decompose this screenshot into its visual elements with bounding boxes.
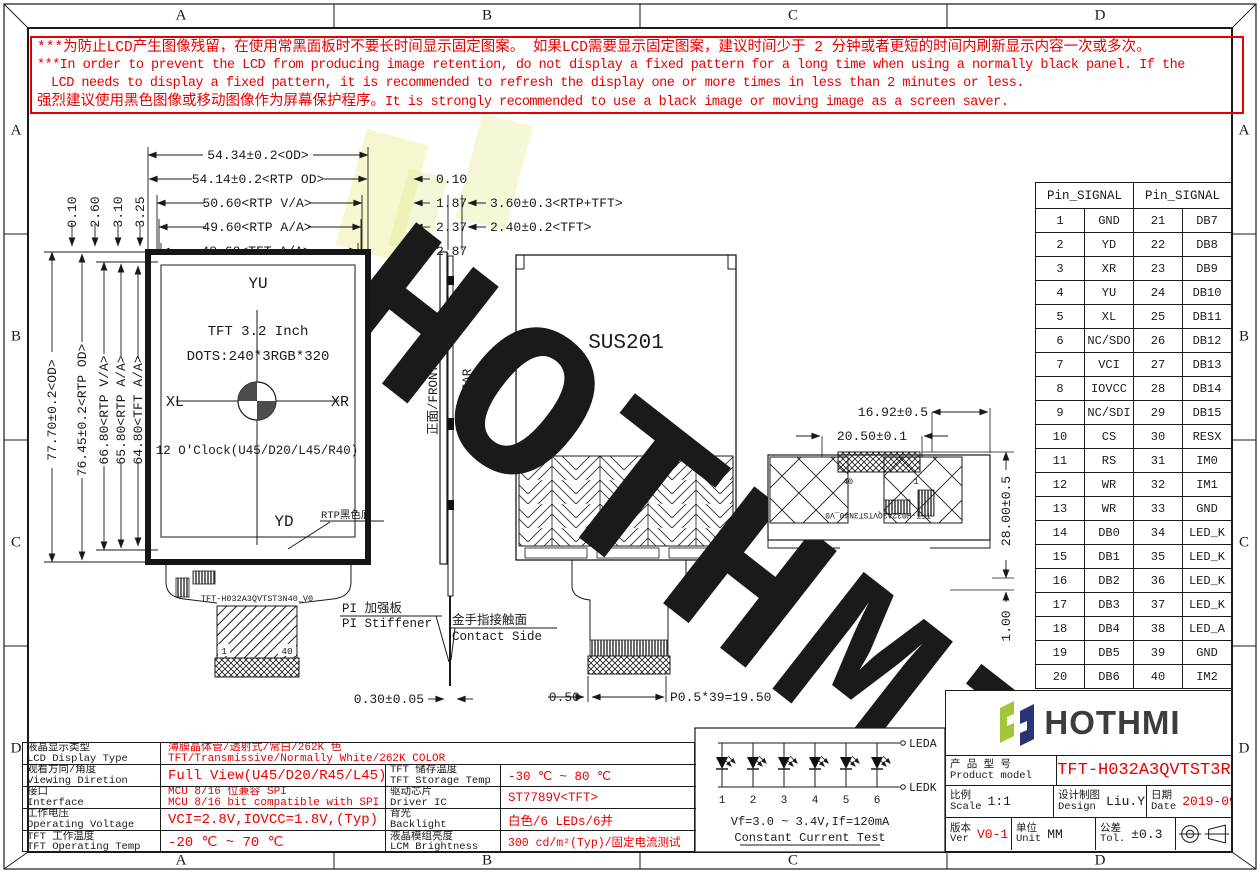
- contact-label-en: Contact Side: [452, 630, 542, 644]
- dim-label: 3.60±0.3<RTP+TFT>: [490, 196, 623, 211]
- dim-label: 65.80<RTP A/A>: [114, 355, 129, 464]
- pin-signal: WR: [1085, 497, 1134, 521]
- pin-signal: DB5: [1085, 641, 1134, 665]
- spec-label-lcm-brightness: 液晶模组亮度 LCM Brightness: [386, 831, 501, 853]
- scale-label-en: Scale: [950, 802, 982, 813]
- pin-table-row: 4 YU 24 DB10: [1036, 281, 1232, 305]
- pin-signal: DB1: [1085, 545, 1134, 569]
- pin-table-row: 16 DB2 36 LED_K: [1036, 569, 1232, 593]
- design-value: Liu.YL: [1100, 794, 1147, 809]
- led-test-label: Constant Current Test: [734, 831, 885, 845]
- detail-pin40-label: 40: [843, 477, 853, 487]
- front-size-label: TFT 3.2 Inch: [208, 324, 309, 340]
- dim-label: 16.92±0.5: [858, 405, 928, 420]
- unit-label-en: Unit: [1016, 834, 1041, 845]
- warning-line-mixed: 强烈建议使用黑色图像或移动图像作为屏幕保护程序。It is strongly r…: [37, 93, 1237, 112]
- ruler-bottom-d: D: [1095, 853, 1106, 870]
- spec-value-display-type: 薄膜晶体管/透射式/常白/262K 色 TFT/Transmissive/Nor…: [161, 743, 696, 765]
- spec-value: ST7789V<TFT>: [508, 791, 598, 805]
- led-number: 1: [719, 795, 726, 807]
- spec-value: 白色/6 LEDs/6并: [508, 810, 613, 829]
- spec-value: Full View(U45/D20/R45/L45): [168, 768, 386, 784]
- unit-cell: 单位 Unit MM: [1012, 818, 1096, 850]
- ruler-left-c: C: [11, 535, 21, 552]
- spec-label-en: Operating Voltage: [27, 820, 160, 831]
- pin-number: 14: [1036, 521, 1085, 545]
- ruler-left-d: D: [11, 741, 22, 758]
- detail-pin1-label: 1: [913, 477, 918, 487]
- dim-label: 77.70±0.2<OD>: [45, 359, 60, 461]
- image-retention-warning: ***为防止LCD产生图像残留，在使用常黑面板时不要长时间显示固定图案。 如果L…: [30, 36, 1244, 114]
- fpc-pin40-label: 40: [281, 646, 293, 657]
- pin-signal: LED_K: [1183, 521, 1232, 545]
- dim-label: 54.34±0.2<OD>: [207, 148, 309, 163]
- design-label-en: Design: [1058, 802, 1100, 813]
- spec-label-en: Interface: [27, 798, 160, 809]
- rtp-black-note: RTP黑色底: [321, 508, 372, 522]
- led-anode-label: LEDA: [909, 738, 937, 751]
- pin-signal: GND: [1183, 641, 1232, 665]
- led-number: 3: [781, 795, 788, 807]
- spec-label-en: TFT Storage Temp: [390, 776, 500, 787]
- pin-signal: RESX: [1183, 425, 1232, 449]
- pin-signal: YU: [1085, 281, 1134, 305]
- pin-number: 10: [1036, 425, 1085, 449]
- spec-label-backlight: 背光 Backlight: [386, 809, 501, 831]
- spec-value-backlight: 白色/6 LEDs/6并: [501, 809, 696, 831]
- tolerance-label-en: Tol.: [1100, 834, 1125, 845]
- design-label-cn: 设计制图: [1058, 791, 1100, 802]
- front-yd-label: YD: [274, 513, 293, 531]
- pin-number: 8: [1036, 377, 1085, 401]
- pin-number: 23: [1134, 257, 1183, 281]
- pin-table-row: 12 WR 32 IM1: [1036, 473, 1232, 497]
- pin-table-row: 14 DB0 34 LED_K: [1036, 521, 1232, 545]
- spec-value-line: 薄膜晶体管/透射式/常白/262K 色: [168, 743, 342, 754]
- date-value: 2019-09-12: [1176, 794, 1231, 809]
- front-clock-label: 12 O'Clock(U45/D20/L45/R40): [156, 444, 359, 458]
- scale-label-cn: 比例: [950, 791, 982, 802]
- pin-signal: DB14: [1183, 377, 1232, 401]
- spec-value-line: TFT/Transmissive/Normally White/262K COL…: [168, 754, 445, 765]
- ruler-bottom-b: B: [482, 853, 492, 870]
- pin-number: 34: [1134, 521, 1183, 545]
- pin-table-row: 20 DB6 40 IM2: [1036, 665, 1232, 689]
- pin-table-row: 2 YD 22 DB8: [1036, 233, 1232, 257]
- spec-label-en: TFT Operating Temp: [27, 842, 160, 853]
- pin-signal: DB15: [1183, 401, 1232, 425]
- pin-signal: IM2: [1183, 665, 1232, 689]
- pin-signal: GND: [1183, 497, 1232, 521]
- date-label-en: Date: [1151, 802, 1176, 813]
- spec-value-interface: MCU 8/16 位兼容 SPI MCU 8/16 bit compatible…: [161, 787, 386, 809]
- pin-signal: DB7: [1183, 209, 1232, 233]
- dim-label: 66.80<RTP V/A>: [97, 355, 112, 464]
- spec-value-storage-temp: -30 ℃ ~ 80 ℃: [501, 765, 696, 787]
- pin-number: 6: [1036, 329, 1085, 353]
- spec-label-cn: 驱动芯片: [390, 787, 500, 798]
- ruler-right-c: C: [1239, 535, 1249, 552]
- ruler-bottom-a: A: [176, 853, 187, 870]
- led-number: 4: [812, 795, 819, 807]
- warning-line-en2: LCD needs to display a fixed pattern, it…: [37, 75, 1237, 93]
- pin-table-header: Pin_SIGNAL Pin_SIGNAL: [1036, 183, 1232, 209]
- dim-label: 3.10: [111, 196, 126, 227]
- pin-table-row: 18 DB4 38 LED_A: [1036, 617, 1232, 641]
- front-yu-label: YU: [248, 275, 267, 293]
- spec-table: 液晶显示类型 LCD Display Type 薄膜晶体管/透射式/常白/262…: [22, 742, 695, 852]
- date-label-cn: 日期: [1151, 791, 1176, 802]
- pin-number: 22: [1134, 233, 1183, 257]
- ruler-top-d: D: [1095, 8, 1106, 25]
- spec-label-operating-temp: TFT 工作温度 TFT Operating Temp: [23, 831, 161, 853]
- pin-table-row: 3 XR 23 DB9: [1036, 257, 1232, 281]
- spec-label-display-type: 液晶显示类型 LCD Display Type: [23, 743, 161, 765]
- pin-signal: IM0: [1183, 449, 1232, 473]
- pin-table-row: 10 CS 30 RESX: [1036, 425, 1232, 449]
- pin-signal: XL: [1085, 305, 1134, 329]
- tolerance-cell: 公差 Tol. ±0.3: [1096, 818, 1176, 850]
- spec-label-interface: 接口 Interface: [23, 787, 161, 809]
- ruler-left-b: B: [11, 329, 21, 346]
- pin-signal: NC/SDI: [1085, 401, 1134, 425]
- spec-label-en: Viewing Diretion: [27, 776, 160, 787]
- pin-signal: LED_K: [1183, 545, 1232, 569]
- spec-label-driver-ic: 驱动芯片 Driver IC: [386, 787, 501, 809]
- stiffener-label-en: PI Stiffener: [342, 617, 432, 631]
- version-value: V0-1: [971, 827, 1008, 842]
- pin-number: 16: [1036, 569, 1085, 593]
- date-cell: 日期 Date 2019-09-12: [1147, 786, 1231, 817]
- pin-signal: LED_K: [1183, 569, 1232, 593]
- spec-label-operating-voltage: 工作电压 Operating Voltage: [23, 809, 161, 831]
- contact-label-cn: 金手指接触面: [452, 612, 527, 628]
- led-number: 5: [843, 795, 850, 807]
- pin-number: 2: [1036, 233, 1085, 257]
- pin-signal: DB6: [1085, 665, 1134, 689]
- warning-line4-cn: 强烈建议使用黑色图像或移动图像作为屏幕保护程序。: [37, 94, 385, 110]
- spec-label-en: Backlight: [390, 820, 500, 831]
- ruler-top-b: B: [482, 8, 492, 25]
- dim-label: 2.40±0.2<TFT>: [490, 220, 592, 235]
- pin-number: 12: [1036, 473, 1085, 497]
- side-rear-label: 背面/REAR: [460, 368, 475, 431]
- ruler-right-d: D: [1239, 741, 1250, 758]
- led-cathode-label: LEDK: [909, 782, 937, 795]
- pin-number: 9: [1036, 401, 1085, 425]
- dim-label: 20.50±0.1: [837, 429, 907, 444]
- pin-signal: WR: [1085, 473, 1134, 497]
- spec-value: -30 ℃ ~ 80 ℃: [508, 768, 611, 784]
- dim-label: 0.10: [65, 196, 80, 227]
- pin-number: 35: [1134, 545, 1183, 569]
- led-spec-label: Vf=3.0 ~ 3.4V,If=120mA: [731, 815, 890, 829]
- pin-number: 4: [1036, 281, 1085, 305]
- pin-signal: DB3: [1085, 593, 1134, 617]
- model-row: 产 品 型 号 Product model TFT-H032A3QVTST3R4…: [946, 756, 1231, 786]
- design-cell: 设计制图 Design Liu.YL: [1054, 786, 1147, 817]
- pin-table-row: 1 GND 21 DB7: [1036, 209, 1232, 233]
- pin-signal: DB13: [1183, 353, 1232, 377]
- scale-value: 1:1: [982, 794, 1011, 809]
- pin-signal: DB0: [1085, 521, 1134, 545]
- dim-label: 0.50: [549, 690, 580, 705]
- led-number: 6: [874, 795, 881, 807]
- pin-number: 15: [1036, 545, 1085, 569]
- title-block: HOTHMI 产 品 型 号 Product model TFT-H032A3Q…: [945, 690, 1232, 852]
- dim-label: 2.37: [436, 220, 467, 235]
- ver-unit-tol-row: 版本 Ver V0-1 单位 Unit MM 公差 Tol. ±0.3: [946, 818, 1231, 850]
- pin-number: 5: [1036, 305, 1085, 329]
- pin-number: 18: [1036, 617, 1085, 641]
- tolerance-value: ±0.3: [1125, 827, 1162, 842]
- ruler-right-a: A: [1239, 123, 1250, 140]
- side-front-label: 正面/FRONT: [427, 365, 441, 436]
- pin-number: 38: [1134, 617, 1183, 641]
- warning-line4-en: It is strongly recommended to use a blac…: [385, 95, 1008, 110]
- pin-number: 24: [1134, 281, 1183, 305]
- fpc-part-label: TFT-H032A3QVTST3N40_V0: [201, 594, 313, 604]
- front-xl-label: XL: [166, 394, 184, 411]
- pin-signal: VCI: [1085, 353, 1134, 377]
- ruler-left-a: A: [11, 123, 22, 140]
- pin-number: 32: [1134, 473, 1183, 497]
- pin-number: 31: [1134, 449, 1183, 473]
- spec-label-viewing-direction: 观看方向/角度 Viewing Diretion: [23, 765, 161, 787]
- dim-label: 1.00: [999, 610, 1014, 641]
- pin-header-left: Pin_SIGNAL: [1036, 183, 1134, 209]
- pin-table-row: 15 DB1 35 LED_K: [1036, 545, 1232, 569]
- pin-table-row: 11 RS 31 IM0: [1036, 449, 1232, 473]
- model-value-cell: TFT-H032A3QVTST3R40: [1057, 756, 1231, 785]
- dim-label: 1.87: [436, 196, 467, 211]
- pin-signal: NC/SDO: [1085, 329, 1134, 353]
- pin-table-row: 7 VCI 27 DB13: [1036, 353, 1232, 377]
- dim-label: 48.60<TFT A/A>: [201, 244, 310, 259]
- pin-number: 30: [1134, 425, 1183, 449]
- hothmi-logo-icon: [996, 699, 1038, 747]
- spec-label-en: LCD Display Type: [27, 754, 160, 765]
- pin-signal: DB4: [1085, 617, 1134, 641]
- product-model: TFT-H032A3QVTST3R40: [1057, 761, 1231, 780]
- spec-value-line: MCU 8/16 bit compatible with SPI: [168, 798, 379, 809]
- datasheet-page: { "colors": {"red":"#e80000","line":"#1a…: [0, 0, 1260, 873]
- pin-signal: GND: [1085, 209, 1134, 233]
- pin-number: 7: [1036, 353, 1085, 377]
- pin-number: 21: [1134, 209, 1183, 233]
- dim-label: 50.60<RTP V/A>: [202, 196, 311, 211]
- spec-value-operating-temp: -20 ℃ ~ 70 ℃: [161, 831, 386, 853]
- pin-table-row: 19 DB5 39 GND: [1036, 641, 1232, 665]
- spec-value: VCI=2.8V,IOVCC=1.8V,(Typ): [168, 812, 378, 828]
- front-xr-label: XR: [331, 394, 349, 411]
- pin-table-row: 9 NC/SDI 29 DB15: [1036, 401, 1232, 425]
- pin-number: 27: [1134, 353, 1183, 377]
- pin-number: 36: [1134, 569, 1183, 593]
- pin-signal: DB8: [1183, 233, 1232, 257]
- pin-table-row: 8 IOVCC 28 DB14: [1036, 377, 1232, 401]
- rear-material-label: SUS201: [588, 332, 664, 355]
- pin-header-right: Pin_SIGNAL: [1134, 183, 1232, 209]
- version-cell: 版本 Ver V0-1: [946, 818, 1012, 850]
- pin-signal: RS: [1085, 449, 1134, 473]
- dim-label: 76.45±0.2<RTP OD>: [75, 343, 90, 476]
- pin-signal: DB11: [1183, 305, 1232, 329]
- pin-number: 40: [1134, 665, 1183, 689]
- pin-number: 28: [1134, 377, 1183, 401]
- pin-number: 13: [1036, 497, 1085, 521]
- pin-signal: DB9: [1183, 257, 1232, 281]
- ruler-top-c: C: [788, 8, 798, 25]
- spec-label-en: LCM Brightness: [390, 842, 500, 853]
- spec-value-lcm-brightness: 300 cd/m²(Typ)/固定电流测试: [501, 831, 696, 853]
- pin-signal-table: Pin_SIGNAL Pin_SIGNAL 1 GND 21 DB7 2 YD …: [1035, 182, 1232, 689]
- version-label-en: Ver: [950, 834, 971, 845]
- pin-table-row: 17 DB3 37 LED_K: [1036, 593, 1232, 617]
- pin-number: 3: [1036, 257, 1085, 281]
- spec-value-line: MCU 8/16 位兼容 SPI: [168, 787, 287, 798]
- pin-signal: IM1: [1183, 473, 1232, 497]
- pin-table-row: 5 XL 25 DB11: [1036, 305, 1232, 329]
- dim-label: 64.80<TFT A/A>: [131, 355, 146, 464]
- pin-number: 17: [1036, 593, 1085, 617]
- pin-number: 19: [1036, 641, 1085, 665]
- spec-value: 300 cd/m²(Typ)/固定电流测试: [508, 834, 681, 850]
- pin-number: 1: [1036, 209, 1085, 233]
- pin-signal: DB12: [1183, 329, 1232, 353]
- projection-cell: [1176, 818, 1231, 850]
- brand-name: HOTHMI: [1044, 704, 1180, 742]
- stiffener-label-cn: PI 加强板: [342, 601, 403, 616]
- spec-value-operating-voltage: VCI=2.8V,IOVCC=1.8V,(Typ): [161, 809, 386, 831]
- detail-part-label: TFT-H032A3QVTST3N40_V0: [825, 510, 931, 519]
- pin-signal: IOVCC: [1085, 377, 1134, 401]
- warning-line-en1: ***In order to prevent the LCD from prod…: [37, 57, 1237, 75]
- dim-label: 0.10: [436, 172, 467, 187]
- model-label-en: Product model: [950, 771, 1032, 782]
- spec-label-cn: 背光: [390, 809, 500, 820]
- pin-number: 20: [1036, 665, 1085, 689]
- pin-signal: YD: [1085, 233, 1134, 257]
- pin-signal: CS: [1085, 425, 1134, 449]
- projection-symbol-icon: [1177, 821, 1231, 847]
- model-label-cn: 产 品 型 号: [950, 760, 1032, 771]
- pin-number: 25: [1134, 305, 1183, 329]
- warning-line-cn: ***为防止LCD产生图像残留，在使用常黑面板时不要长时间显示固定图案。 如果L…: [37, 39, 1237, 57]
- fpc-pin1-label: 1: [221, 646, 227, 657]
- spec-label-cn: TFT 储存温度: [390, 765, 500, 776]
- spec-label-cn: 接口: [27, 787, 160, 798]
- ruler-bottom-c: C: [788, 853, 798, 870]
- pin-number: 11: [1036, 449, 1085, 473]
- pin-number: 29: [1134, 401, 1183, 425]
- brand-logo: HOTHMI: [946, 691, 1231, 756]
- pin-signal: LED_K: [1183, 593, 1232, 617]
- spec-value-viewing-direction: Full View(U45/D20/R45/L45): [161, 765, 386, 787]
- led-number: 2: [750, 795, 757, 807]
- spec-label-cn: 液晶显示类型: [27, 743, 160, 754]
- dim-label: 28.00±0.5: [999, 476, 1014, 546]
- dim-label: P0.5*39=19.50: [670, 690, 771, 705]
- pin-table-row: 6 NC/SDO 26 DB12: [1036, 329, 1232, 353]
- spec-value-driver-ic: ST7789V<TFT>: [501, 787, 696, 809]
- spec-label-cn: 观看方向/角度: [27, 765, 160, 776]
- pin-number: 37: [1134, 593, 1183, 617]
- pin-signal: DB2: [1085, 569, 1134, 593]
- spec-label-en: Driver IC: [390, 798, 500, 809]
- scale-design-date-row: 比例 Scale 1:1 设计制图 Design Liu.YL 日期 Date …: [946, 786, 1231, 818]
- pin-signal: XR: [1085, 257, 1134, 281]
- scale-cell: 比例 Scale 1:1: [946, 786, 1054, 817]
- ruler-right-b: B: [1239, 329, 1249, 346]
- pin-number: 39: [1134, 641, 1183, 665]
- spec-label-cn: 工作电压: [27, 809, 160, 820]
- ruler-top-a: A: [176, 8, 187, 25]
- dim-label: 49.60<RTP A/A>: [202, 220, 311, 235]
- pin-number: 26: [1134, 329, 1183, 353]
- model-label-cell: 产 品 型 号 Product model: [946, 756, 1057, 785]
- dim-label: 0.30±0.05: [354, 692, 424, 707]
- spec-label-storage-temp: TFT 储存温度 TFT Storage Temp: [386, 765, 501, 787]
- dim-label: 3.25: [133, 196, 148, 227]
- pin-number: 33: [1134, 497, 1183, 521]
- pin-signal: DB10: [1183, 281, 1232, 305]
- pin-table-row: 13 WR 33 GND: [1036, 497, 1232, 521]
- dim-label: 2.60: [88, 196, 103, 227]
- spec-value: -20 ℃ ~ 70 ℃: [168, 834, 283, 851]
- unit-value: MM: [1041, 827, 1063, 842]
- dim-label: 54.14±0.2<RTP OD>: [192, 172, 325, 187]
- pin-signal: LED_A: [1183, 617, 1232, 641]
- front-dots-label: DOTS:240*3RGB*320: [187, 349, 330, 365]
